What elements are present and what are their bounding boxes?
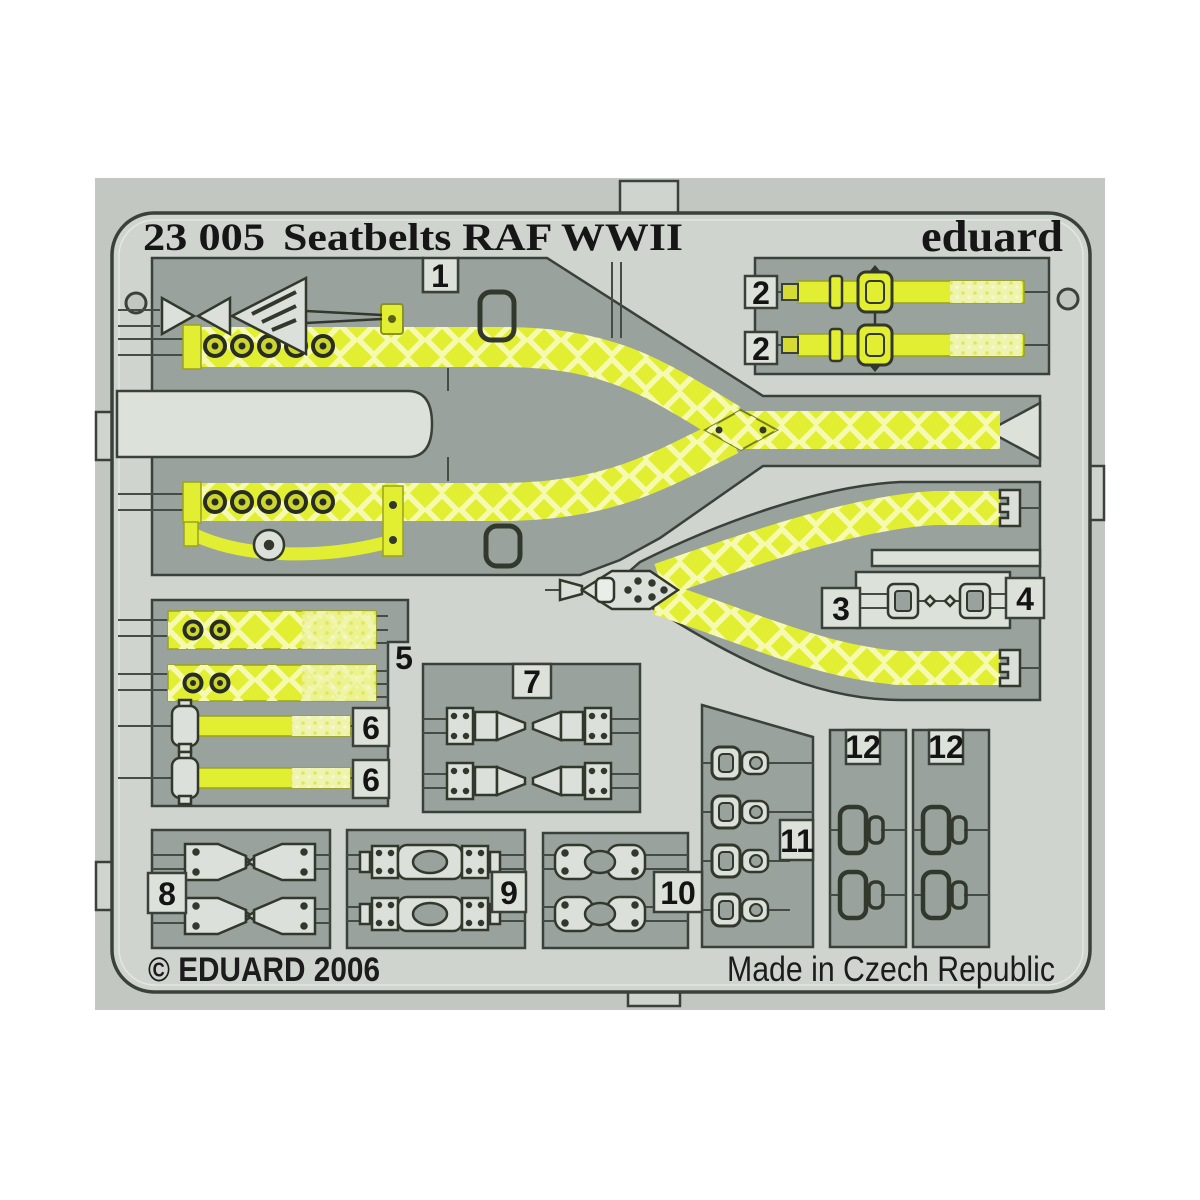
part-label-6b: 6: [362, 762, 380, 798]
part-label-11: 11: [780, 823, 814, 859]
part-label-3: 3: [832, 591, 850, 627]
strap-slider: [830, 329, 842, 361]
belt-end-tab: [183, 482, 201, 523]
part-label-2b: 2: [752, 331, 770, 367]
strap-vertical-tab: [383, 486, 403, 556]
mounting-hole-right: [1058, 289, 1078, 309]
part-label-12b: 12: [928, 729, 964, 765]
part-label-9: 9: [500, 875, 518, 911]
cutout-strip: [117, 391, 432, 457]
part-label-12a: 12: [845, 729, 881, 765]
part-label-1: 1: [431, 258, 449, 294]
part-label-5: 5: [395, 640, 413, 676]
copyright-text: © EDUARD 2006: [148, 951, 380, 989]
strap-buckle: [858, 272, 892, 312]
photoetch-fret-photo: 1 2 2 3 4 5 6 6 7 8 9 10 11 12 12 23 005…: [0, 0, 1200, 1200]
cutout-34-strip: [872, 550, 1040, 566]
brand-logo-text: eduard: [921, 212, 1063, 261]
part-label-7: 7: [523, 664, 541, 700]
made-in-text: Made in Czech Republic: [727, 950, 1055, 989]
part-label-6a: 6: [362, 710, 380, 746]
part-label-2a: 2: [752, 275, 770, 311]
belt-end-tab: [183, 325, 201, 369]
part-label-8: 8: [158, 876, 176, 912]
plate-title: 23 005Seatbelts RAF WWII: [143, 216, 683, 259]
belt-end-clip: [1000, 490, 1020, 526]
fret-photo-svg: 1 2 2 3 4 5 6 6 7 8 9 10 11 12 12 23 005…: [0, 0, 1200, 1200]
belt-end-clip: [1000, 650, 1020, 686]
strap-slider: [830, 276, 842, 308]
strap-buckle: [858, 325, 892, 365]
part-label-10: 10: [660, 875, 696, 911]
part-label-4: 4: [1016, 581, 1034, 617]
